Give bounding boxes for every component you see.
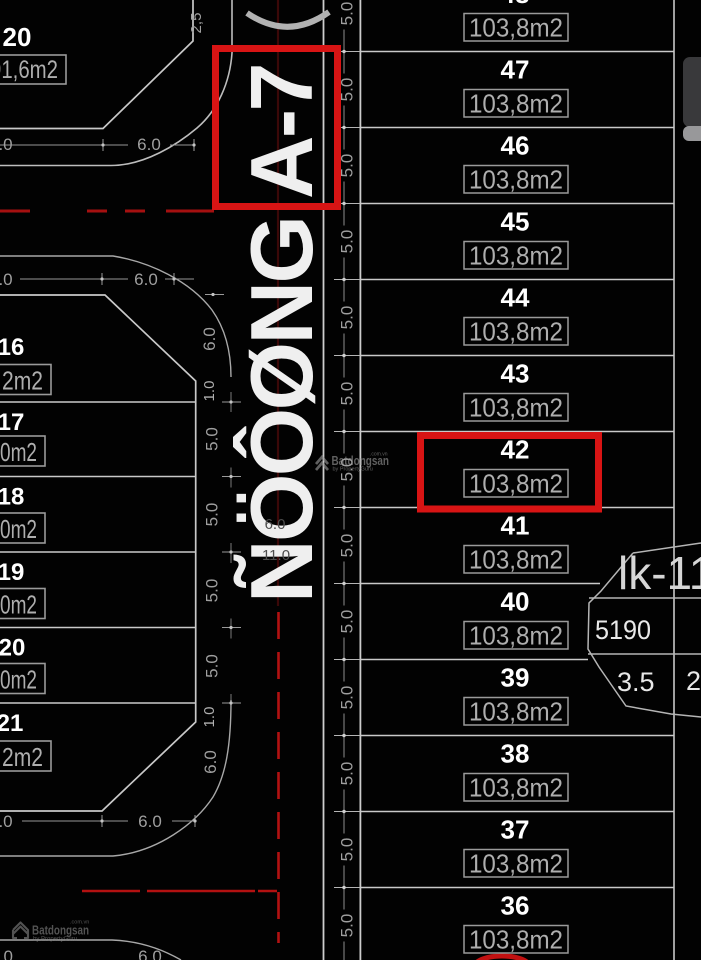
svg-text:6.0: 6.0	[265, 516, 286, 533]
svg-text:41: 41	[501, 511, 530, 541]
svg-text:45: 45	[501, 207, 530, 237]
svg-text:44: 44	[501, 283, 530, 313]
svg-text:5.0: 5.0	[338, 838, 357, 862]
svg-text:0m2: 0m2	[0, 514, 37, 544]
svg-text:5.0: 5.0	[338, 914, 357, 938]
svg-text:5.0: 5.0	[338, 2, 357, 26]
svg-text:6.0: 6.0	[138, 947, 162, 960]
svg-text:5.0: 5.0	[203, 503, 222, 527]
svg-text:19: 19	[0, 559, 24, 586]
svg-text:91,6m2: 91,6m2	[0, 56, 58, 84]
svg-text:by PropertyGuru: by PropertyGuru	[33, 937, 77, 943]
svg-text:5.0: 5.0	[338, 762, 357, 786]
svg-text:38: 38	[501, 739, 530, 769]
svg-text:5.0: 5.0	[338, 306, 357, 330]
svg-text:6.0: 6.0	[138, 812, 162, 831]
svg-text:20: 20	[3, 22, 32, 52]
svg-text:43: 43	[501, 359, 530, 389]
svg-text:47: 47	[501, 55, 530, 85]
svg-text:6.0: 6.0	[0, 135, 13, 154]
svg-text:5.0: 5.0	[338, 382, 357, 406]
svg-text:103,8m2: 103,8m2	[469, 317, 563, 347]
svg-text:37: 37	[501, 815, 530, 845]
svg-text:103,8m2: 103,8m2	[469, 849, 563, 879]
svg-text:6.0: 6.0	[134, 270, 158, 289]
svg-text:5.0: 5.0	[338, 686, 357, 710]
svg-text:0m2: 0m2	[0, 590, 37, 620]
svg-text:5.0: 5.0	[338, 154, 357, 178]
svg-text:.com.vn: .com.vn	[70, 920, 89, 926]
svg-text:5.0: 5.0	[338, 534, 357, 558]
svg-text:103,8m2: 103,8m2	[469, 393, 563, 423]
svg-text:1.0: 1.0	[201, 707, 218, 728]
svg-text:103,8m2: 103,8m2	[469, 925, 563, 955]
svg-text:103,8m2: 103,8m2	[469, 621, 563, 651]
svg-text:0m2: 0m2	[0, 665, 37, 695]
svg-text:20: 20	[0, 635, 25, 662]
svg-text:6.0: 6.0	[0, 270, 13, 289]
svg-text:5190: 5190	[595, 615, 651, 645]
svg-text:5.0: 5.0	[203, 427, 222, 451]
svg-text:103,8m2: 103,8m2	[469, 165, 563, 195]
svg-text:103,8m2: 103,8m2	[469, 13, 563, 43]
svg-text:36: 36	[501, 891, 530, 921]
svg-text:103,8m2: 103,8m2	[469, 697, 563, 727]
svg-text:2m2: 2m2	[2, 742, 43, 772]
svg-text:6.0: 6.0	[137, 135, 161, 154]
svg-text:0m2: 0m2	[0, 437, 37, 467]
svg-text:103,8m2: 103,8m2	[469, 241, 563, 271]
svg-text:5.0: 5.0	[203, 579, 222, 603]
svg-text:18: 18	[0, 484, 24, 511]
svg-text:39: 39	[501, 663, 530, 693]
svg-text:103,8m2: 103,8m2	[469, 469, 563, 499]
svg-text:6.0: 6.0	[200, 327, 219, 351]
svg-text:40: 40	[501, 587, 530, 617]
svg-text:103,8m2: 103,8m2	[469, 545, 563, 575]
svg-text:by PropertyGuru: by PropertyGuru	[333, 467, 373, 473]
svg-text:2: 2	[686, 666, 701, 696]
svg-text:5.0: 5.0	[203, 654, 222, 678]
svg-text:21: 21	[0, 710, 23, 737]
svg-text:42: 42	[501, 435, 530, 465]
svg-text:2,5: 2,5	[188, 13, 205, 34]
svg-text:5.0: 5.0	[338, 610, 357, 634]
svg-text:11.0: 11.0	[262, 547, 290, 564]
svg-text:17: 17	[0, 409, 24, 436]
svg-text:16: 16	[0, 334, 24, 361]
svg-text:lk-11: lk-11	[618, 547, 701, 599]
svg-text:6.0: 6.0	[201, 750, 220, 774]
svg-text:6.0: 6.0	[0, 947, 13, 960]
svg-text:48: 48	[501, 0, 530, 9]
svg-text:.com.vn: .com.vn	[370, 452, 388, 458]
svg-text:6.0: 6.0	[0, 812, 13, 831]
svg-text:3.5: 3.5	[617, 667, 655, 697]
svg-text:46: 46	[501, 131, 530, 161]
svg-text:5.0: 5.0	[338, 230, 357, 254]
svg-text:2m2: 2m2	[2, 366, 43, 396]
svg-text:5.0: 5.0	[338, 78, 357, 102]
svg-text:103,8m2: 103,8m2	[469, 89, 563, 119]
svg-text:103,8m2: 103,8m2	[469, 773, 563, 803]
svg-text:1.0: 1.0	[201, 381, 218, 402]
